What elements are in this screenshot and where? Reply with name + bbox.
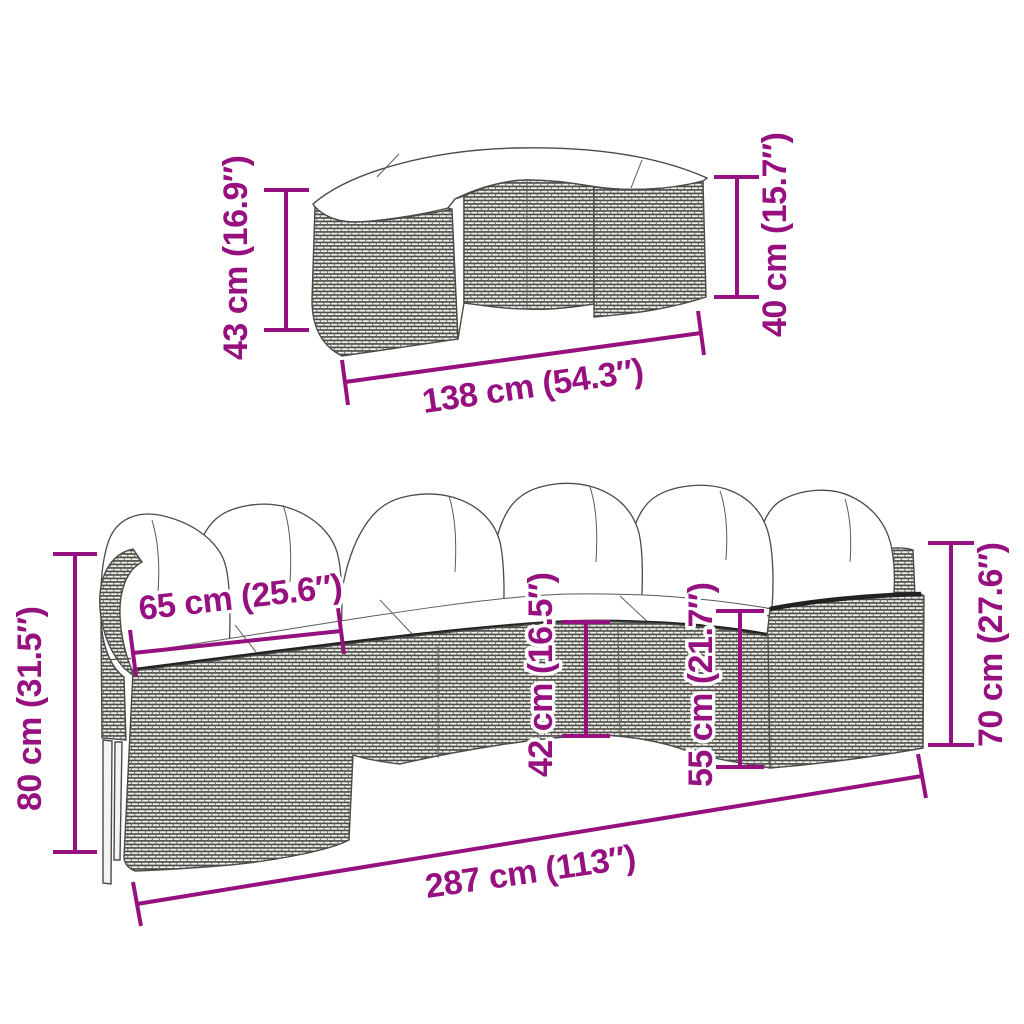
svg-text:40 cm (15.7″): 40 cm (15.7″)	[756, 133, 794, 337]
svg-text:287 cm (113″): 287 cm (113″)	[423, 838, 638, 906]
svg-text:70 cm (27.6″): 70 cm (27.6″)	[972, 543, 1010, 747]
svg-text:42 cm (16.5″): 42 cm (16.5″)	[522, 573, 560, 777]
svg-text:43 cm (16.9″): 43 cm (16.9″)	[217, 156, 255, 360]
svg-text:138 cm (54.3″): 138 cm (54.3″)	[420, 352, 646, 421]
svg-text:55 cm (21.7″): 55 cm (21.7″)	[682, 583, 720, 787]
svg-text:80 cm (31.5″): 80 cm (31.5″)	[11, 607, 49, 811]
